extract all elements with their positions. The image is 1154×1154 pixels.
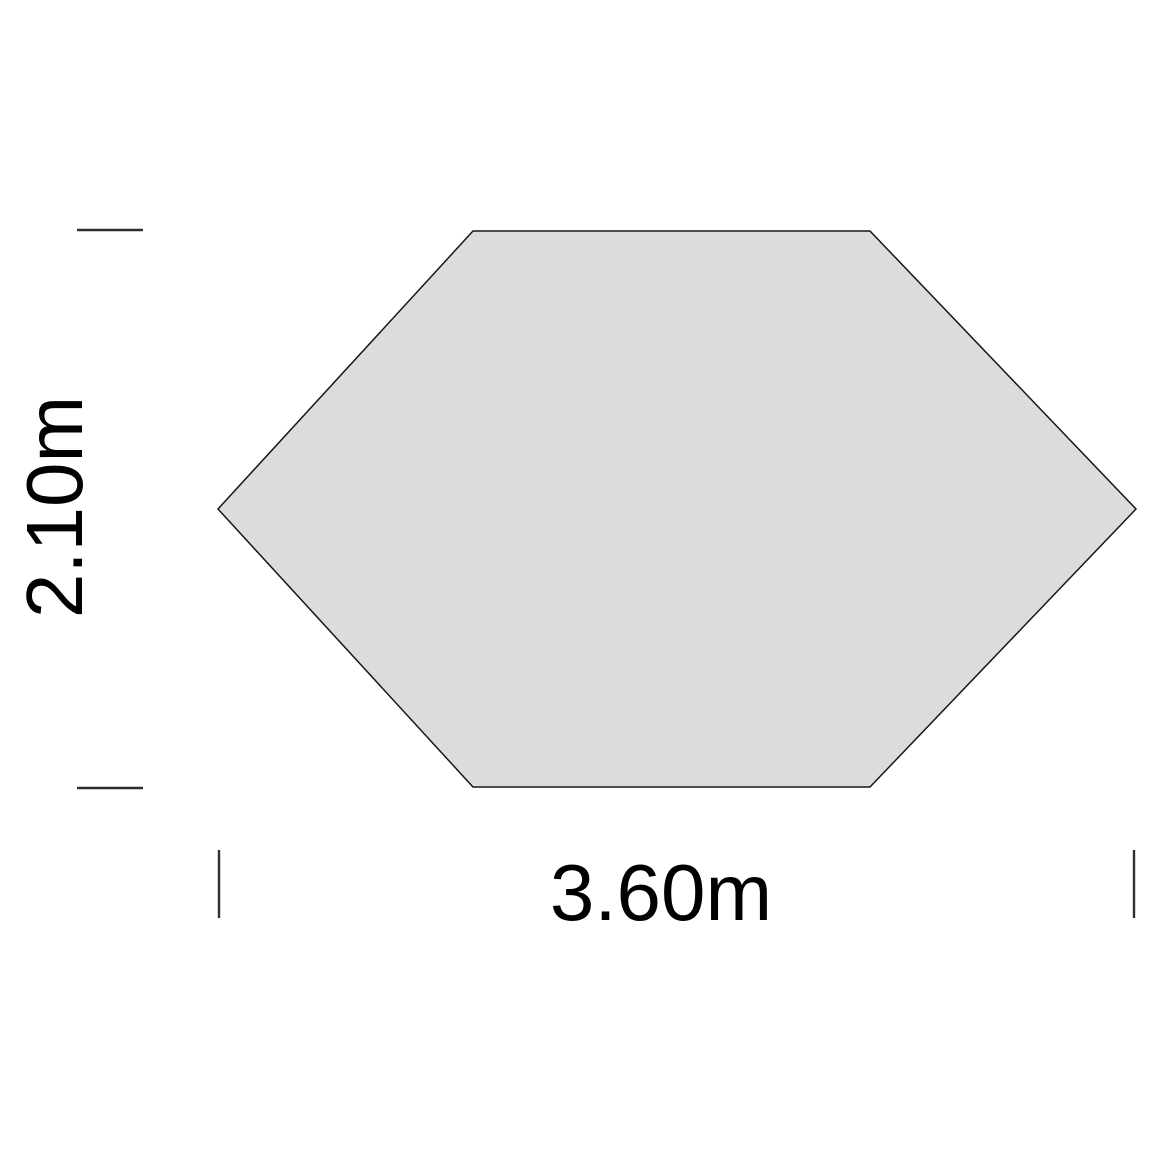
dimension-diagram: 2.10m 3.60m bbox=[0, 0, 1154, 1154]
height-dimension-label: 2.10m bbox=[10, 396, 99, 618]
hexagon-shape bbox=[218, 231, 1136, 787]
width-dimension-label: 3.60m bbox=[550, 848, 772, 937]
